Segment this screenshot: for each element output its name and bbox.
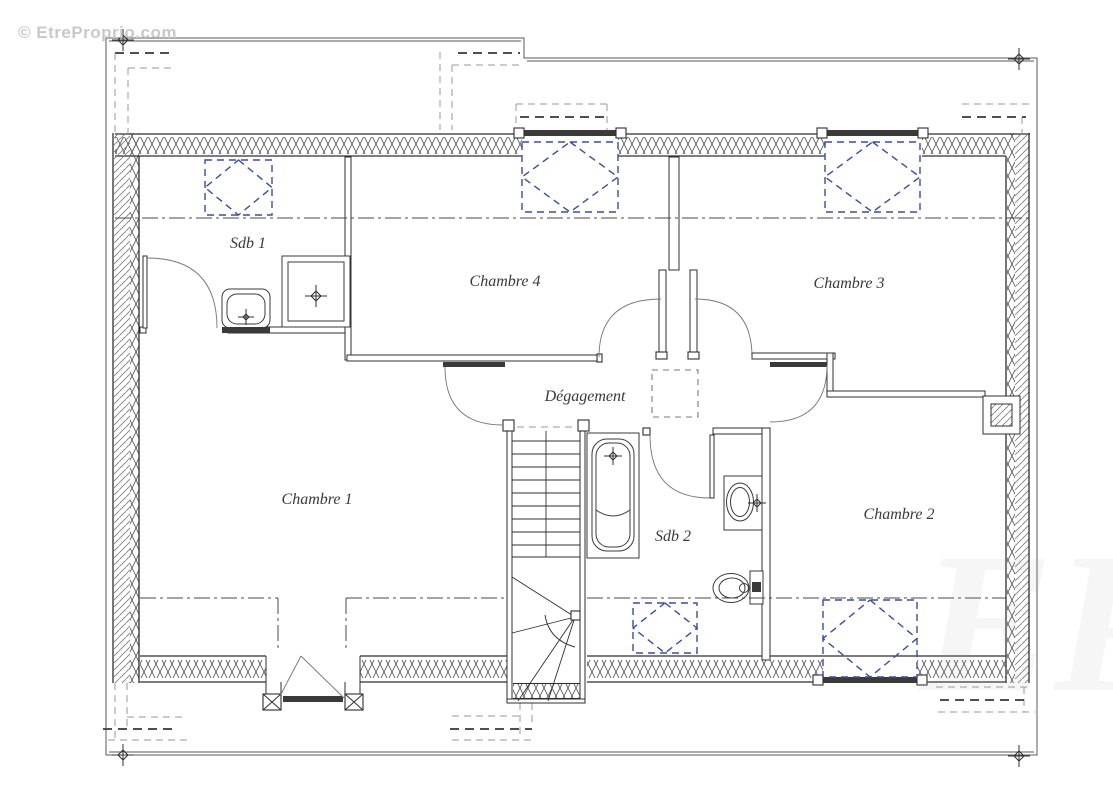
sdb2-north-wall <box>713 428 762 434</box>
top-window <box>817 128 928 138</box>
central-partition <box>669 157 679 270</box>
washbasin-icon <box>724 476 766 530</box>
survey-cross-icon <box>112 744 134 766</box>
staircase <box>503 420 589 703</box>
room-label-chambre4: Chambre 4 <box>470 273 541 290</box>
ceiling-hatch-icon <box>652 370 698 417</box>
sdb2-door <box>650 435 714 498</box>
chambre3-door <box>695 299 752 357</box>
watermark-logo: EP <box>918 513 1113 734</box>
velux-icon <box>825 142 920 212</box>
bathtub-icon <box>587 433 639 558</box>
left-wall-masonry <box>114 133 130 683</box>
roof-window-icons <box>205 142 920 677</box>
left-wall-insulation <box>130 133 139 683</box>
survey-cross-icon <box>1008 48 1030 70</box>
velux-icon <box>823 600 917 677</box>
sdb2-east-wall <box>762 428 770 660</box>
velux-icon <box>205 160 272 215</box>
fixtures <box>222 256 766 604</box>
chambre3-south-wall <box>752 353 835 359</box>
room-label-chambre3: Chambre 3 <box>814 275 885 292</box>
top-wall-insulation <box>115 137 522 154</box>
velux-icon <box>633 603 697 653</box>
top-window <box>514 128 626 138</box>
floor-plan-drawing: Sdb 1 Chambre 4 Chambre 3 Dégagement Cha… <box>0 0 1113 800</box>
room-label-degagement: Dégagement <box>544 388 626 405</box>
chambre1-door <box>443 362 505 425</box>
watermark-text: © EtreProprio.com <box>18 23 177 42</box>
room-label-sdb1: Sdb 1 <box>230 235 266 252</box>
washbasin-icon <box>222 289 270 333</box>
chambre2-door <box>770 362 827 422</box>
floor-plan-canvas: Sdb 1 Chambre 4 Chambre 3 Dégagement Cha… <box>0 0 1113 800</box>
chambre4-door <box>599 299 661 357</box>
shower-icon <box>282 256 350 327</box>
sdb1-door <box>143 256 217 328</box>
height-lines <box>115 218 1029 652</box>
chambre1-north-wall <box>347 355 599 361</box>
french-window <box>263 656 363 710</box>
survey-cross-icon <box>1008 745 1030 767</box>
room-label-sdb2: Sdb 2 <box>655 528 691 545</box>
toilet-icon <box>713 571 763 604</box>
velux-icon <box>522 142 618 212</box>
duct-box <box>983 396 1020 434</box>
room-label-chambre1: Chambre 1 <box>282 491 353 508</box>
watermarks: © EtreProprio.com EP <box>18 23 1113 734</box>
